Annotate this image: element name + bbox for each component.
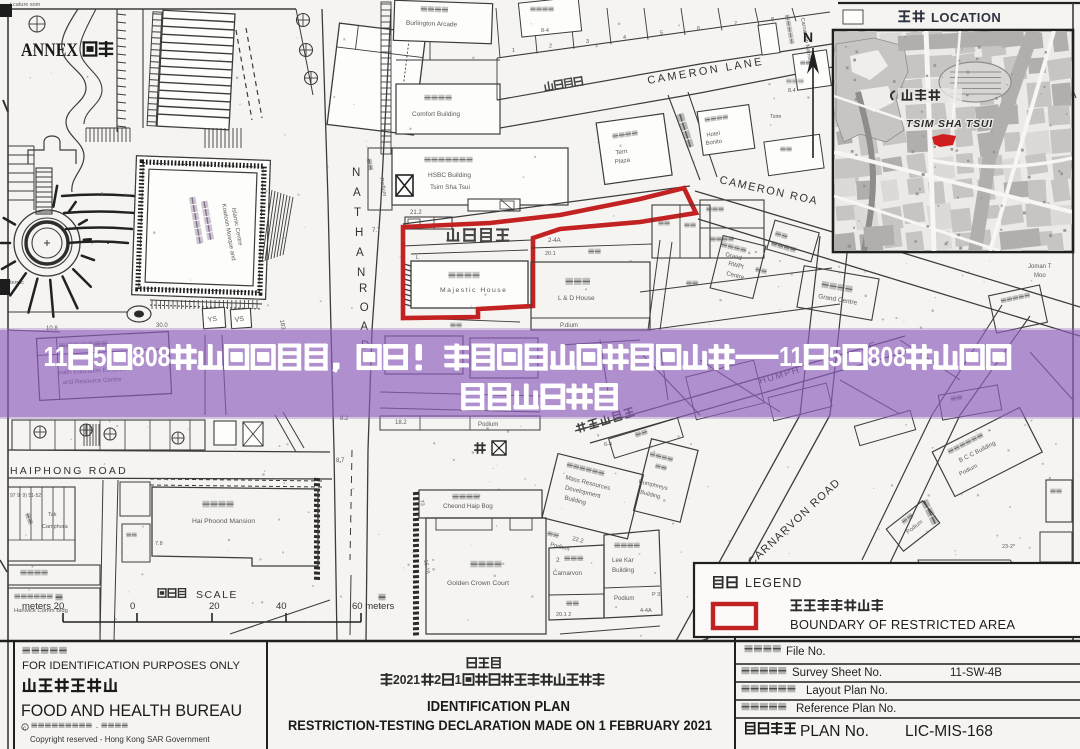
svg-text:0: 0 (130, 601, 135, 612)
svg-text:7.8: 7.8 (155, 541, 163, 547)
svg-text:21.2: 21.2 (410, 210, 422, 216)
svg-text:Camphora: Camphora (42, 524, 69, 530)
svg-text:8.7: 8.7 (336, 458, 345, 464)
svg-text:4: 4 (623, 35, 626, 41)
svg-text:60 meters: 60 meters (352, 601, 394, 612)
svg-text:97 9: 9) 51-52: 97 9: 9) 51-52 (10, 493, 41, 499)
svg-text:3: 3 (586, 39, 589, 45)
svg-text:73: 73 (418, 499, 425, 506)
svg-text:7.7: 7.7 (372, 228, 381, 234)
svg-text:11: 11 (779, 341, 803, 372)
svg-text:40: 40 (276, 601, 287, 612)
svg-text:HAIPHONG ROAD: HAIPHONG ROAD (10, 465, 128, 477)
svg-text:FOR IDENTIFICATION PURPOSES ON: FOR IDENTIFICATION PURPOSES ONLY (22, 660, 241, 672)
svg-text:8-4: 8-4 (541, 28, 549, 34)
svg-text:2: 2 (549, 44, 552, 50)
svg-text:5: 5 (93, 341, 107, 372)
svg-text:R: R (359, 283, 367, 295)
svg-text:8.4: 8.4 (788, 88, 796, 94)
svg-text:Tsim Sha Tsui: Tsim Sha Tsui (430, 184, 470, 191)
svg-text:6: 6 (697, 26, 700, 32)
svg-text:2: 2 (556, 557, 560, 564)
svg-text:HSBC Building: HSBC Building (428, 172, 471, 179)
svg-text:6-4: 6-4 (604, 442, 612, 448)
svg-text:SCALE: SCALE (196, 589, 238, 601)
svg-text:5: 5 (829, 341, 843, 372)
svg-text:LIC-MIS-168: LIC-MIS-168 (905, 723, 993, 740)
svg-text:L: L (416, 255, 419, 261)
svg-text:Joman T: Joman T (1028, 264, 1052, 270)
svg-text:N: N (803, 29, 813, 45)
svg-text:20.1: 20.1 (545, 251, 556, 257)
svg-text:P 3: P 3 (652, 592, 660, 598)
svg-text:Comfort Building: Comfort Building (412, 111, 460, 118)
svg-text:Golden Crown Court: Golden Crown Court (447, 580, 509, 587)
svg-text:LEGEND: LEGEND (745, 576, 802, 590)
svg-text:Survey Sheet No.: Survey Sheet No. (792, 667, 882, 679)
svg-text:meters 20: meters 20 (22, 601, 64, 612)
svg-text:11: 11 (44, 341, 68, 372)
svg-text:1: 1 (512, 48, 515, 54)
svg-text:2: 2 (434, 672, 441, 687)
svg-text:O: O (360, 302, 369, 314)
svg-text:RESTRICTION-TESTING DECLARATIO: RESTRICTION-TESTING DECLARATION MADE ON … (288, 718, 712, 733)
svg-text:T: T (354, 207, 361, 219)
svg-text:Layout Plan No.: Layout Plan No. (806, 685, 888, 697)
svg-text:Carnarvon: Carnarvon (553, 570, 582, 577)
svg-text:BOUNDARY OF RESTRICTED AREA: BOUNDARY OF RESTRICTED AREA (790, 617, 1015, 632)
svg-text:TSIM SHA TSUI: TSIM SHA TSUI (906, 118, 993, 130)
svg-text:Reference Plan No.: Reference Plan No. (796, 703, 896, 715)
svg-text:5: 5 (660, 30, 663, 36)
svg-text:FOOD AND HEALTH BUREAU: FOOD AND HEALTH BUREAU (21, 701, 242, 720)
svg-text:N: N (352, 167, 360, 179)
svg-text:PLAN No.: PLAN No. (800, 723, 869, 740)
svg-text:H: H (355, 227, 363, 239)
svg-text:20.1 2: 20.1 2 (556, 612, 571, 618)
svg-text:Podium: Podium (478, 422, 498, 428)
svg-text:8: 8 (771, 17, 774, 23)
svg-text:Building: Building (612, 567, 635, 574)
svg-text:File No.: File No. (786, 646, 826, 658)
svg-text:c: c (23, 726, 26, 732)
svg-text:808: 808 (868, 341, 907, 372)
svg-text:1: 1 (455, 672, 462, 687)
svg-text:L & D House: L & D House (558, 295, 595, 302)
svg-text:18.2: 18.2 (395, 420, 407, 426)
svg-text:20: 20 (209, 601, 220, 612)
svg-text:2-4A: 2-4A (548, 238, 561, 244)
svg-text:IDENTIFICATION PLAN: IDENTIFICATION PLAN (427, 699, 570, 715)
svg-text:VS: VS (234, 316, 245, 324)
svg-text:808: 808 (132, 341, 171, 372)
svg-text:4-4A: 4-4A (640, 608, 652, 614)
svg-text:11-SW-4B: 11-SW-4B (950, 667, 1002, 679)
svg-text:Podium: Podium (614, 596, 634, 602)
svg-text:Lee Kar: Lee Kar (612, 557, 634, 564)
svg-text:Tsim: Tsim (770, 114, 782, 120)
svg-text:-: - (96, 724, 98, 731)
svg-text:A: A (356, 247, 364, 259)
svg-text:ANNEX: ANNEX (21, 40, 78, 61)
svg-text:YS: YS (207, 316, 218, 324)
svg-text:7: 7 (734, 22, 737, 28)
svg-text:t.cature som: t.cature som (10, 2, 41, 8)
svg-text:LOCATION: LOCATION (931, 10, 1001, 25)
svg-text:Hai Phoond Mansion: Hai Phoond Mansion (192, 518, 255, 525)
svg-text:Cheond Haip Bog: Cheond Haip Bog (443, 503, 493, 510)
svg-text:N: N (357, 267, 365, 279)
svg-text:Tak: Tak (48, 512, 57, 518)
svg-text:Majestic House: Majestic House (440, 287, 507, 294)
svg-text:23-2*: 23-2* (1002, 544, 1016, 550)
svg-text:2021: 2021 (393, 672, 420, 687)
svg-text:Moo: Moo (1034, 273, 1046, 279)
svg-text:Copyright reserved - Hong: Copyright reserved - Hong Kong SAR Gover… (30, 735, 210, 744)
svg-text:A: A (353, 187, 361, 199)
